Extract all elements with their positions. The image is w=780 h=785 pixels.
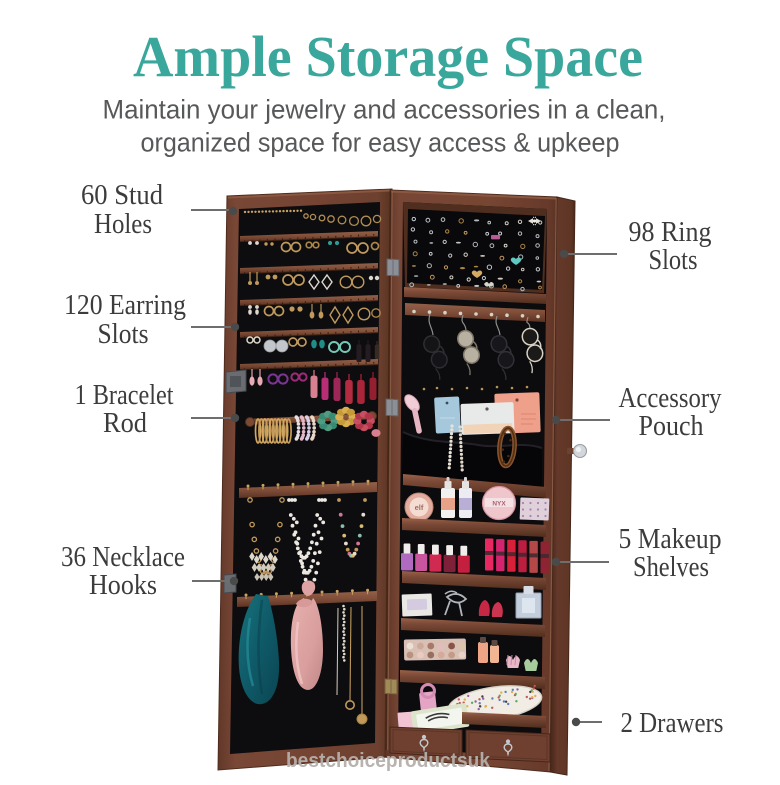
- svg-text:organized space for easy acces: organized space for easy access & upkeep: [141, 128, 620, 158]
- svg-text:elf: elf: [415, 503, 424, 512]
- svg-text:5 Makeup: 5 Makeup: [619, 524, 722, 555]
- svg-text:Hooks: Hooks: [89, 570, 157, 601]
- svg-text:Accessory: Accessory: [619, 383, 722, 414]
- svg-text:120 Earring: 120 Earring: [64, 290, 186, 321]
- svg-text:Maintain your jewelry and acce: Maintain your jewelry and accessories in…: [103, 95, 666, 125]
- svg-text:60 Stud: 60 Stud: [81, 180, 163, 211]
- svg-text:1 Bracelet: 1 Bracelet: [75, 380, 174, 411]
- svg-text:98 Ring: 98 Ring: [629, 217, 712, 248]
- svg-text:Slots: Slots: [98, 319, 149, 350]
- svg-text:2 Drawers: 2 Drawers: [621, 708, 724, 739]
- svg-text:NYX: NYX: [492, 501, 506, 508]
- svg-text:Rod: Rod: [103, 408, 147, 439]
- svg-text:36 Necklace: 36 Necklace: [61, 542, 185, 573]
- svg-text:Ample Storage Space: Ample Storage Space: [133, 24, 643, 89]
- svg-text:bestchoiceproductsuk: bestchoiceproductsuk: [286, 749, 491, 772]
- svg-text:Slots: Slots: [649, 245, 698, 276]
- svg-text:Holes: Holes: [94, 209, 152, 240]
- svg-text:Shelves: Shelves: [633, 552, 709, 583]
- svg-text:Pouch: Pouch: [639, 411, 704, 442]
